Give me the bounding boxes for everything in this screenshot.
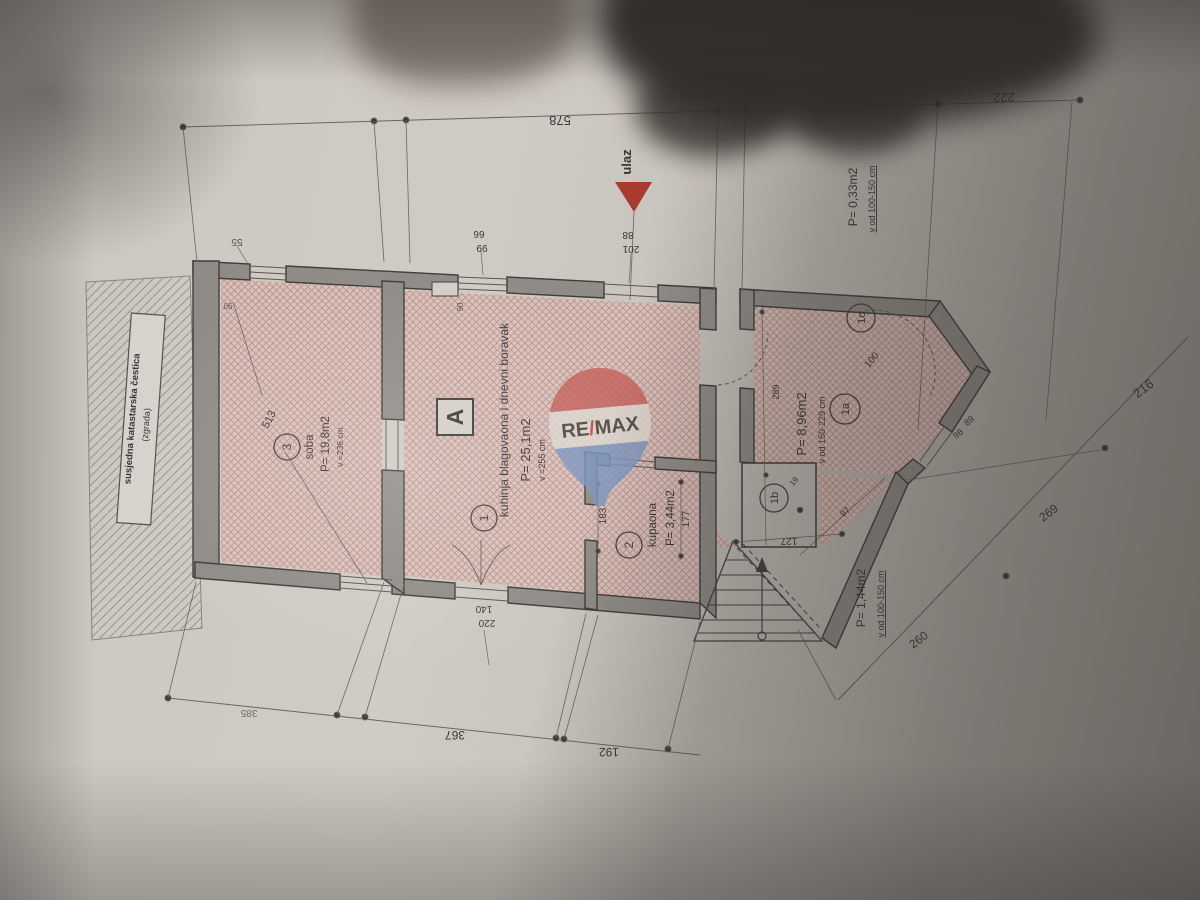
dim-89: 89 bbox=[962, 414, 976, 428]
kitchen-name: kuhinja blagovaona i dnevni boravak bbox=[497, 322, 511, 517]
stairs-arrow-head bbox=[756, 557, 768, 572]
floor-plan-drawing: susjedna katastarska čestica (zgrada) bbox=[0, 0, 1200, 900]
dim-stairs-127: 127 bbox=[780, 535, 797, 546]
wall-kitchen-right-lower bbox=[700, 385, 716, 618]
floor-plan-photo: susjedna katastarska čestica (zgrada) bbox=[0, 0, 1200, 900]
dim-entry-door-88: 88 bbox=[622, 229, 634, 240]
dim-terrace-door-140: 140 bbox=[475, 603, 492, 614]
wall-bedroom-kitchen-lower bbox=[382, 470, 404, 594]
dim-bathroom-177: 177 bbox=[681, 510, 692, 527]
attic-1a-area: P= 8,96m2 bbox=[794, 392, 809, 455]
wall-attic-left-lower bbox=[740, 388, 754, 463]
bathroom-name: kupaona bbox=[647, 502, 659, 547]
zone-033-height: v od 100-150 cm bbox=[867, 165, 877, 232]
entrance-arrow-icon bbox=[615, 182, 652, 212]
dim-kitchen-window-99: 99 bbox=[476, 242, 488, 253]
dim-entry-door-201: 201 bbox=[622, 243, 639, 254]
dim-19: 19 bbox=[788, 475, 801, 488]
room-1a-number: 1a bbox=[840, 402, 852, 415]
dim-bottom-367: 367 bbox=[445, 728, 465, 742]
dim-terrace-door-220: 220 bbox=[478, 617, 495, 628]
bathroom-area: P= 3,44m2 bbox=[665, 490, 677, 546]
entrance-label: ulaz bbox=[619, 149, 634, 175]
dim-bottom-192: 192 bbox=[599, 745, 619, 759]
bedroom-height: v =236 cm bbox=[335, 427, 345, 466]
dim-kitchen-window-66: 66 bbox=[473, 228, 485, 239]
entrance: ulaz bbox=[615, 149, 652, 300]
wall-left bbox=[193, 261, 219, 580]
dim-top-323: 323 bbox=[828, 98, 850, 113]
section-marker: A bbox=[437, 399, 473, 435]
dim-boundary-269: 269 bbox=[1036, 501, 1061, 524]
wall-kitchen-right-upper bbox=[700, 288, 716, 330]
bedroom-area: P= 19,8m2 bbox=[320, 416, 332, 472]
room-1-number: 1 bbox=[477, 514, 491, 521]
dim-bathroom-183: 183 bbox=[598, 507, 609, 524]
kitchen-height: v =255 cm bbox=[537, 439, 547, 481]
attic-1a-height: v od 150-229 cm bbox=[817, 396, 827, 463]
room-1b-number: 1b bbox=[769, 492, 781, 504]
bedroom-name: soba bbox=[304, 434, 316, 460]
room-1b-dot bbox=[797, 507, 803, 513]
zone-033-area: P= 0,33m2 bbox=[846, 167, 860, 226]
section-marker-letter: A bbox=[442, 409, 468, 426]
dim-kitchen-window-90: 90 bbox=[456, 302, 465, 311]
kitchen-area: P= 25,1m2 bbox=[518, 418, 533, 481]
neighbor-parcel-hatch: susjedna katastarska čestica (zgrada) bbox=[86, 276, 202, 640]
room-2-number: 2 bbox=[622, 541, 636, 548]
wall-top-3 bbox=[507, 277, 604, 298]
wall-niche bbox=[432, 282, 458, 296]
dim-bottom-385: 385 bbox=[240, 707, 257, 718]
wall-bedroom-kitchen-upper bbox=[382, 281, 404, 420]
room-3-number: 3 bbox=[280, 443, 294, 450]
remax-max: MAX bbox=[594, 413, 641, 440]
dim-top-578: 578 bbox=[549, 113, 571, 128]
wall-attic-left-upper bbox=[740, 289, 754, 330]
dim-bedroom-window-55: 55 bbox=[231, 236, 243, 247]
remax-re: RE bbox=[560, 418, 590, 443]
zone-144-height: v od 100-150 cm bbox=[876, 570, 886, 637]
dim-attic-289: 289 bbox=[771, 384, 781, 399]
room-1c-number: 1c bbox=[856, 312, 868, 324]
dim-bedroom-window-90: 90 bbox=[223, 301, 232, 310]
dim-boundary-216: 216 bbox=[1130, 376, 1156, 401]
bedroom-floor bbox=[221, 279, 382, 576]
zone-144-area: P= 1,44m2 bbox=[854, 568, 868, 627]
dim-top-222: 222 bbox=[993, 90, 1015, 105]
dim-boundary-260: 260 bbox=[906, 628, 931, 651]
